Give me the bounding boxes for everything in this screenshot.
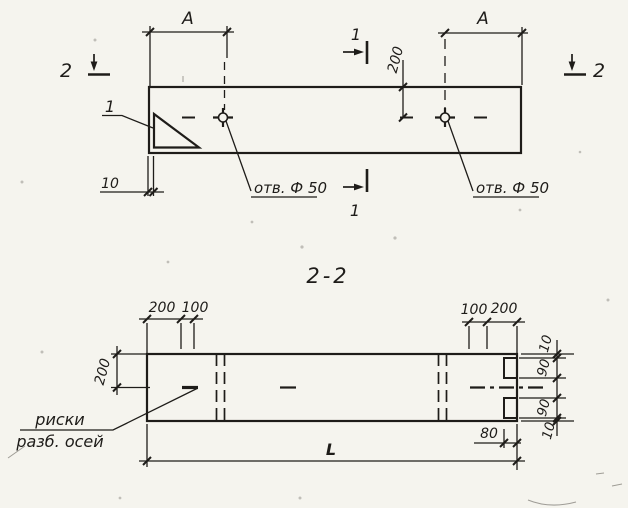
section-2-right-label: 2 <box>593 60 605 82</box>
dim-topleft-100: 100 <box>182 300 209 316</box>
dim-a-left-extensions <box>150 26 227 86</box>
plan-view: 1 A A 200 1 1 2 <box>60 9 605 220</box>
dim-topleft-extensions <box>147 323 194 353</box>
section-1-bottom-arrowhead-icon <box>354 184 364 191</box>
dim-end-90-top: 90 <box>534 357 554 378</box>
dim-200-plan-value: 200 <box>385 45 407 75</box>
hole-callout-left-text: отв. Ф 50 <box>254 179 327 197</box>
dim-a-left-value: A <box>181 9 194 29</box>
dim-10-value: 10 <box>101 176 119 192</box>
hole-callout-right-text: отв. Ф 50 <box>476 179 549 197</box>
dim-80-value: 80 <box>480 426 498 442</box>
dim-topright-200: 200 <box>491 301 518 317</box>
hidden-hole-left-lines <box>217 354 225 421</box>
section-view: 2-2 200 100 100 200 200 риски <box>15 264 574 470</box>
dim-topright-extensions <box>469 326 517 353</box>
hole-right <box>400 108 487 127</box>
section-1-top-label: 1 <box>351 25 361 44</box>
section-2-left-label: 2 <box>60 60 72 82</box>
hole-left-circle <box>219 113 228 122</box>
section-2-marker-left: 2 <box>60 54 110 82</box>
dim-topright-100: 100 <box>461 302 488 318</box>
section-1-marker-top: 1 <box>343 25 367 64</box>
section-2-marker-right: 2 <box>564 54 605 82</box>
hole-left <box>182 108 233 127</box>
section-1-top-arrowhead-icon <box>354 49 364 56</box>
scan-dashes <box>596 473 622 486</box>
dim-end-10-top: 10 <box>536 333 556 354</box>
section-2-right-arrowhead-icon <box>569 62 576 72</box>
hole-callout-right: отв. Ф 50 <box>448 121 549 197</box>
scan-squiggle <box>528 500 576 505</box>
hole-callout-left: отв. Ф 50 <box>226 121 327 197</box>
detail-ref-leader-line <box>102 116 153 129</box>
corner-detail-triangle <box>154 114 199 148</box>
dim-end-10-bottom: 10 <box>539 420 559 441</box>
section-beam-outline <box>147 354 517 421</box>
hole-right-circle <box>441 113 450 122</box>
hidden-hole-right-lines <box>439 354 447 421</box>
section-title: 2-2 <box>306 264 349 288</box>
section-2-left-arrowhead-icon <box>91 62 98 72</box>
drawing-sheet: 1 A A 200 1 1 2 <box>0 0 628 508</box>
plan-beam-outline <box>149 87 521 153</box>
dim-a-right-value: A <box>476 9 489 29</box>
axes-label: риски разб. осей <box>15 389 197 452</box>
detail-ref-label: 1 <box>105 97 115 116</box>
section-1-marker-bottom: 1 <box>343 169 367 220</box>
end-notch-top <box>504 358 517 378</box>
section-1-bottom-label: 1 <box>350 201 360 220</box>
end-notch-bottom <box>504 398 517 418</box>
dim-end-90-bottom: 90 <box>534 397 554 418</box>
dim-height-value: 200 <box>92 357 114 387</box>
dim-length-value: L <box>326 440 336 459</box>
axes-label-line1: риски <box>34 410 84 429</box>
technical-drawing-svg: 1 A A 200 1 1 2 <box>0 0 628 508</box>
dim-topleft-200: 200 <box>149 300 176 316</box>
axes-label-line2: разб. осей <box>15 432 103 451</box>
